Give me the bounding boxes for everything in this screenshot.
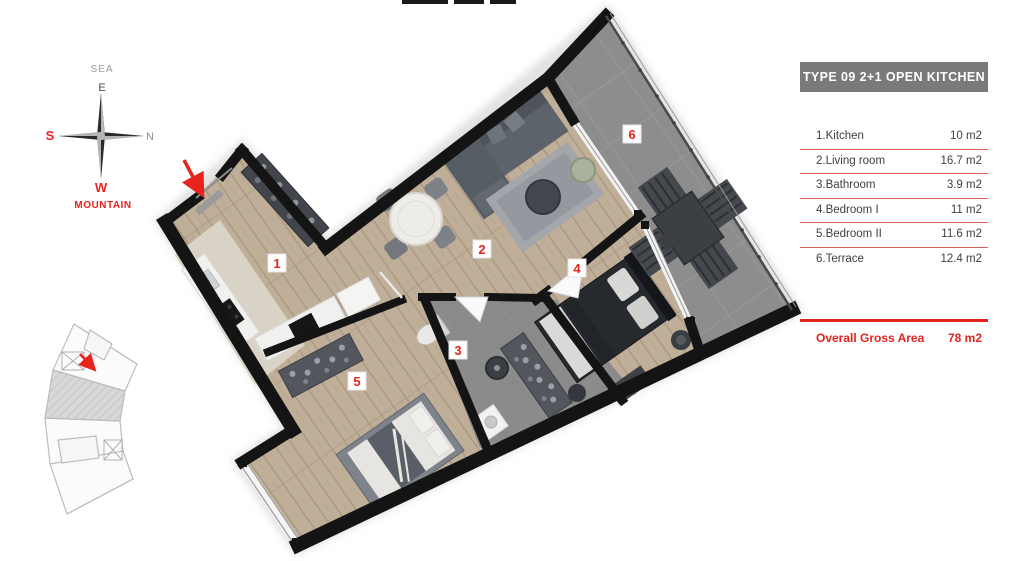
compass: SEA E S N W MOUNTAIN (46, 64, 154, 211)
plant (676, 335, 686, 345)
table-row-living: 2.Living room 16.7 m2 (800, 150, 988, 175)
total-label: Overall Gross Area (816, 331, 924, 345)
compass-e-label: E (98, 82, 105, 94)
total-value: 78 m2 (948, 331, 982, 345)
top-edge-fragments (402, 0, 516, 4)
room-label-kitchen: 1 (268, 254, 286, 272)
type-header: TYPE 09 2+1 OPEN KITCHEN (800, 62, 988, 92)
room-area: 10 m2 (950, 125, 982, 149)
table-row-bathroom: 3.Bathroom 3.9 m2 (800, 174, 988, 199)
room-number: 5 (353, 374, 360, 389)
bathroom-n-wall-b (488, 297, 545, 298)
floorplan-page: { "legend": { "header": "TYPE 09 2+1 OPE… (0, 0, 1024, 561)
compass-n-label: N (146, 131, 154, 143)
room-name: 4.Bedroom I (816, 199, 879, 223)
compass-w-label: W (95, 180, 108, 195)
compass-s-label: S (46, 128, 55, 143)
room-name: 1.Kitchen (816, 125, 864, 149)
room-area: 3.9 m2 (947, 174, 982, 198)
room-number: 6 (628, 127, 635, 142)
room-area: 12.4 m2 (940, 248, 982, 272)
table-row-bedroom2: 5.Bedroom II 11.6 m2 (800, 223, 988, 248)
coffee-table (526, 180, 560, 214)
room-area: 11.6 m2 (941, 223, 982, 247)
room-label-bedroom2: 5 (348, 372, 366, 390)
sink-drain (494, 365, 500, 371)
room-name: 3.Bathroom (816, 174, 875, 198)
room-label-bedroom1: 4 (568, 259, 586, 277)
room-number: 1 (273, 256, 280, 271)
room-number: 4 (573, 261, 581, 276)
room-name: 2.Living room (816, 150, 885, 174)
site-key-plan (45, 324, 137, 514)
room-label-bathroom: 3 (449, 341, 467, 359)
side-table (571, 158, 595, 182)
compass-sea-label: SEA (90, 64, 113, 75)
room-name: 6.Terrace (816, 248, 864, 272)
room-number: 2 (478, 242, 485, 257)
legend-panel: TYPE 09 2+1 OPEN KITCHEN 1.Kitchen 10 m2… (800, 62, 988, 345)
room-area: 16.7 m2 (940, 150, 982, 174)
room-number: 3 (454, 343, 461, 358)
total-row: Overall Gross Area 78 m2 (800, 331, 988, 345)
room-label-terrace: 6 (623, 125, 641, 143)
room-area: 11 m2 (951, 199, 982, 223)
room-label-living: 2 (473, 240, 491, 258)
room-name: 5.Bedroom II (816, 223, 882, 247)
table-row-kitchen: 1.Kitchen 10 m2 (800, 125, 988, 150)
total-divider (800, 319, 988, 322)
table-row-terrace: 6.Terrace 12.4 m2 (800, 248, 988, 272)
compass-mountain-label: MOUNTAIN (74, 200, 131, 211)
table-row-bedroom1: 4.Bedroom I 11 m2 (800, 199, 988, 224)
room-area-table: 1.Kitchen 10 m2 2.Living room 16.7 m2 3.… (800, 125, 988, 271)
